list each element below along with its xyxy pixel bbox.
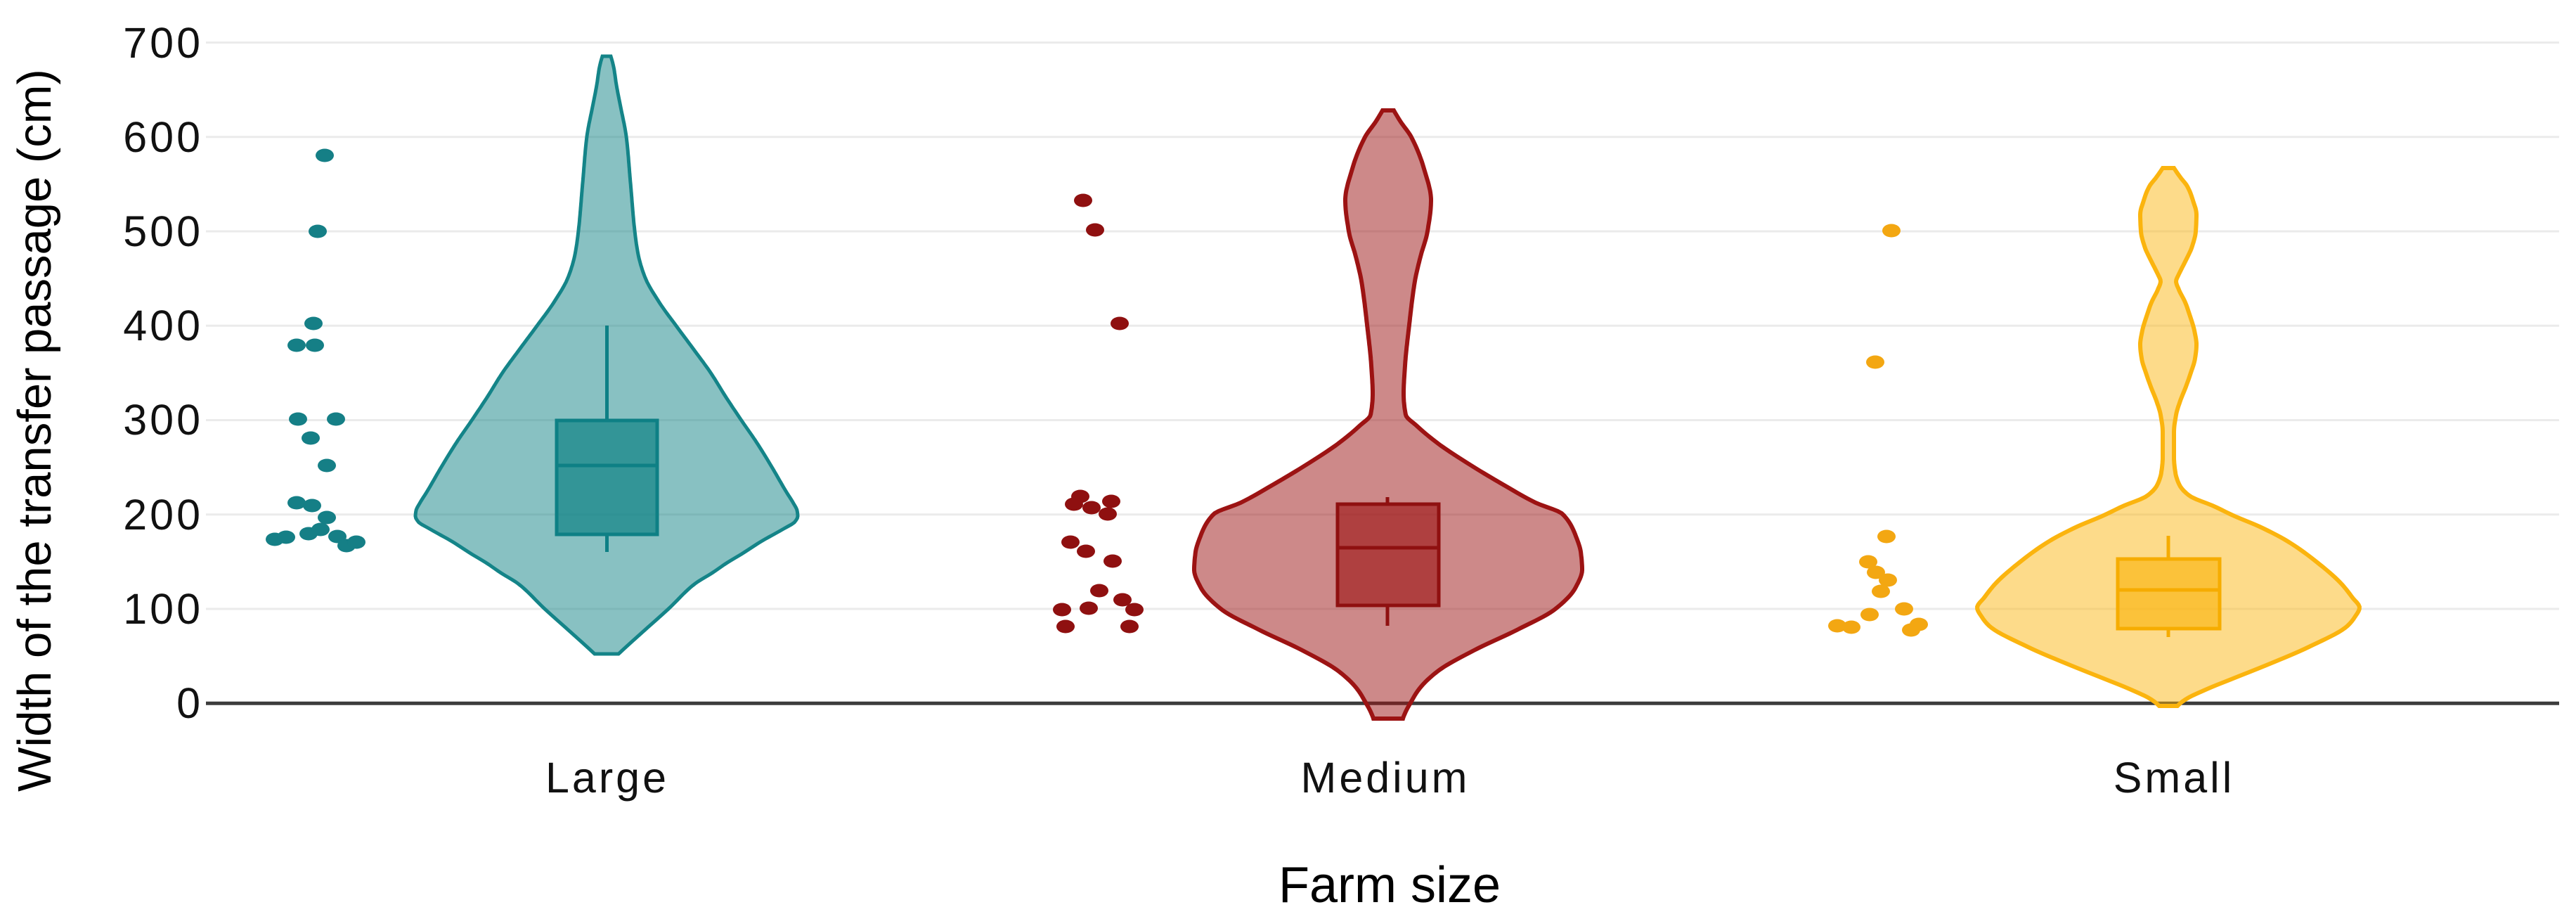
svg-text:Large: Large bbox=[545, 754, 669, 802]
svg-text:200: 200 bbox=[123, 491, 203, 539]
svg-text:Small: Small bbox=[2114, 754, 2235, 802]
svg-text:Width of the transfer passage: Width of the transfer passage (cm) bbox=[8, 69, 61, 792]
svg-text:Farm size: Farm size bbox=[1279, 857, 1501, 913]
svg-text:300: 300 bbox=[123, 396, 203, 444]
svg-text:700: 700 bbox=[123, 19, 203, 67]
svg-text:400: 400 bbox=[123, 302, 203, 349]
svg-text:Medium: Medium bbox=[1301, 754, 1470, 802]
svg-text:600: 600 bbox=[123, 113, 203, 161]
svg-text:100: 100 bbox=[123, 585, 203, 633]
svg-text:0: 0 bbox=[176, 679, 203, 727]
svg-text:500: 500 bbox=[123, 207, 203, 255]
